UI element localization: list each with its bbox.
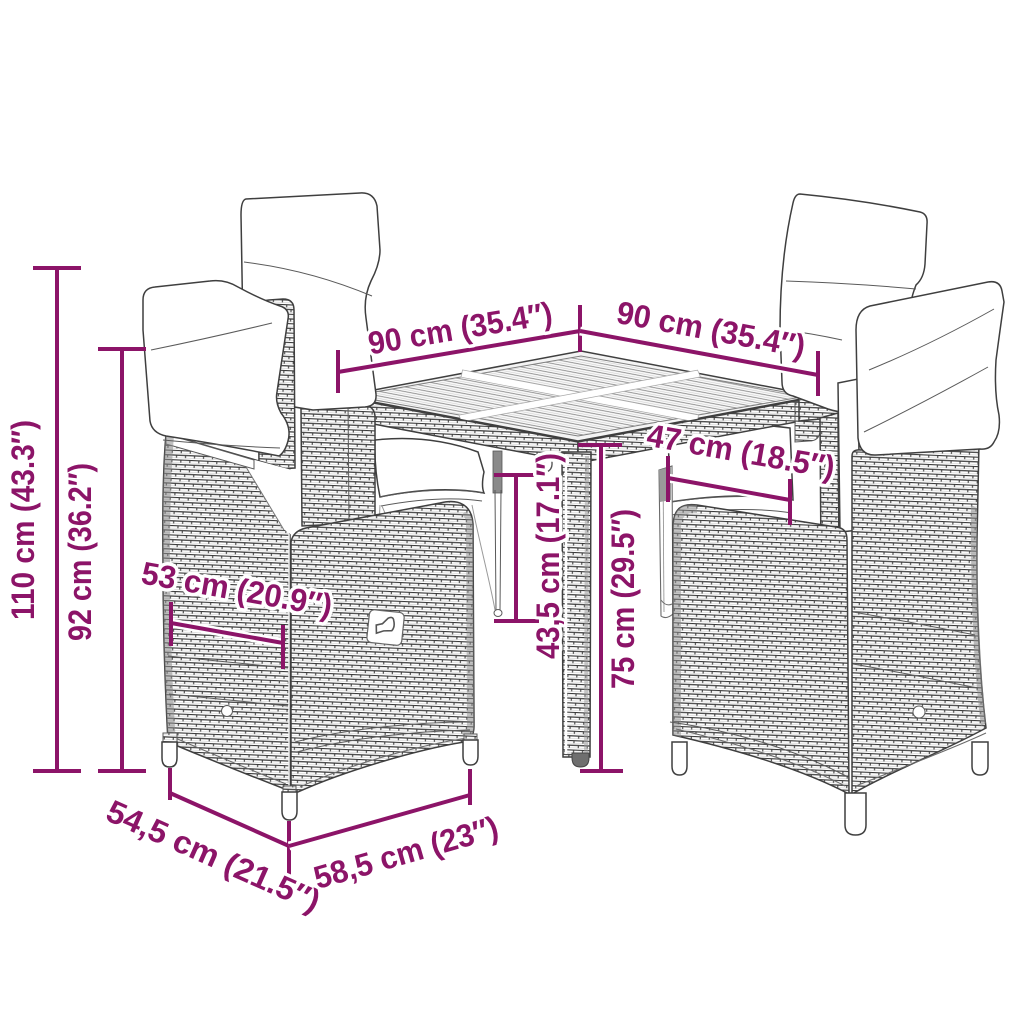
svg-text:92 cm (36.2″): 92 cm (36.2″) — [62, 463, 98, 641]
svg-text:110 cm (43.3″): 110 cm (43.3″) — [5, 420, 41, 620]
svg-text:43,5 cm (17.1″): 43,5 cm (17.1″) — [530, 453, 566, 659]
svg-text:75 cm (29.5″): 75 cm (29.5″) — [605, 509, 641, 689]
